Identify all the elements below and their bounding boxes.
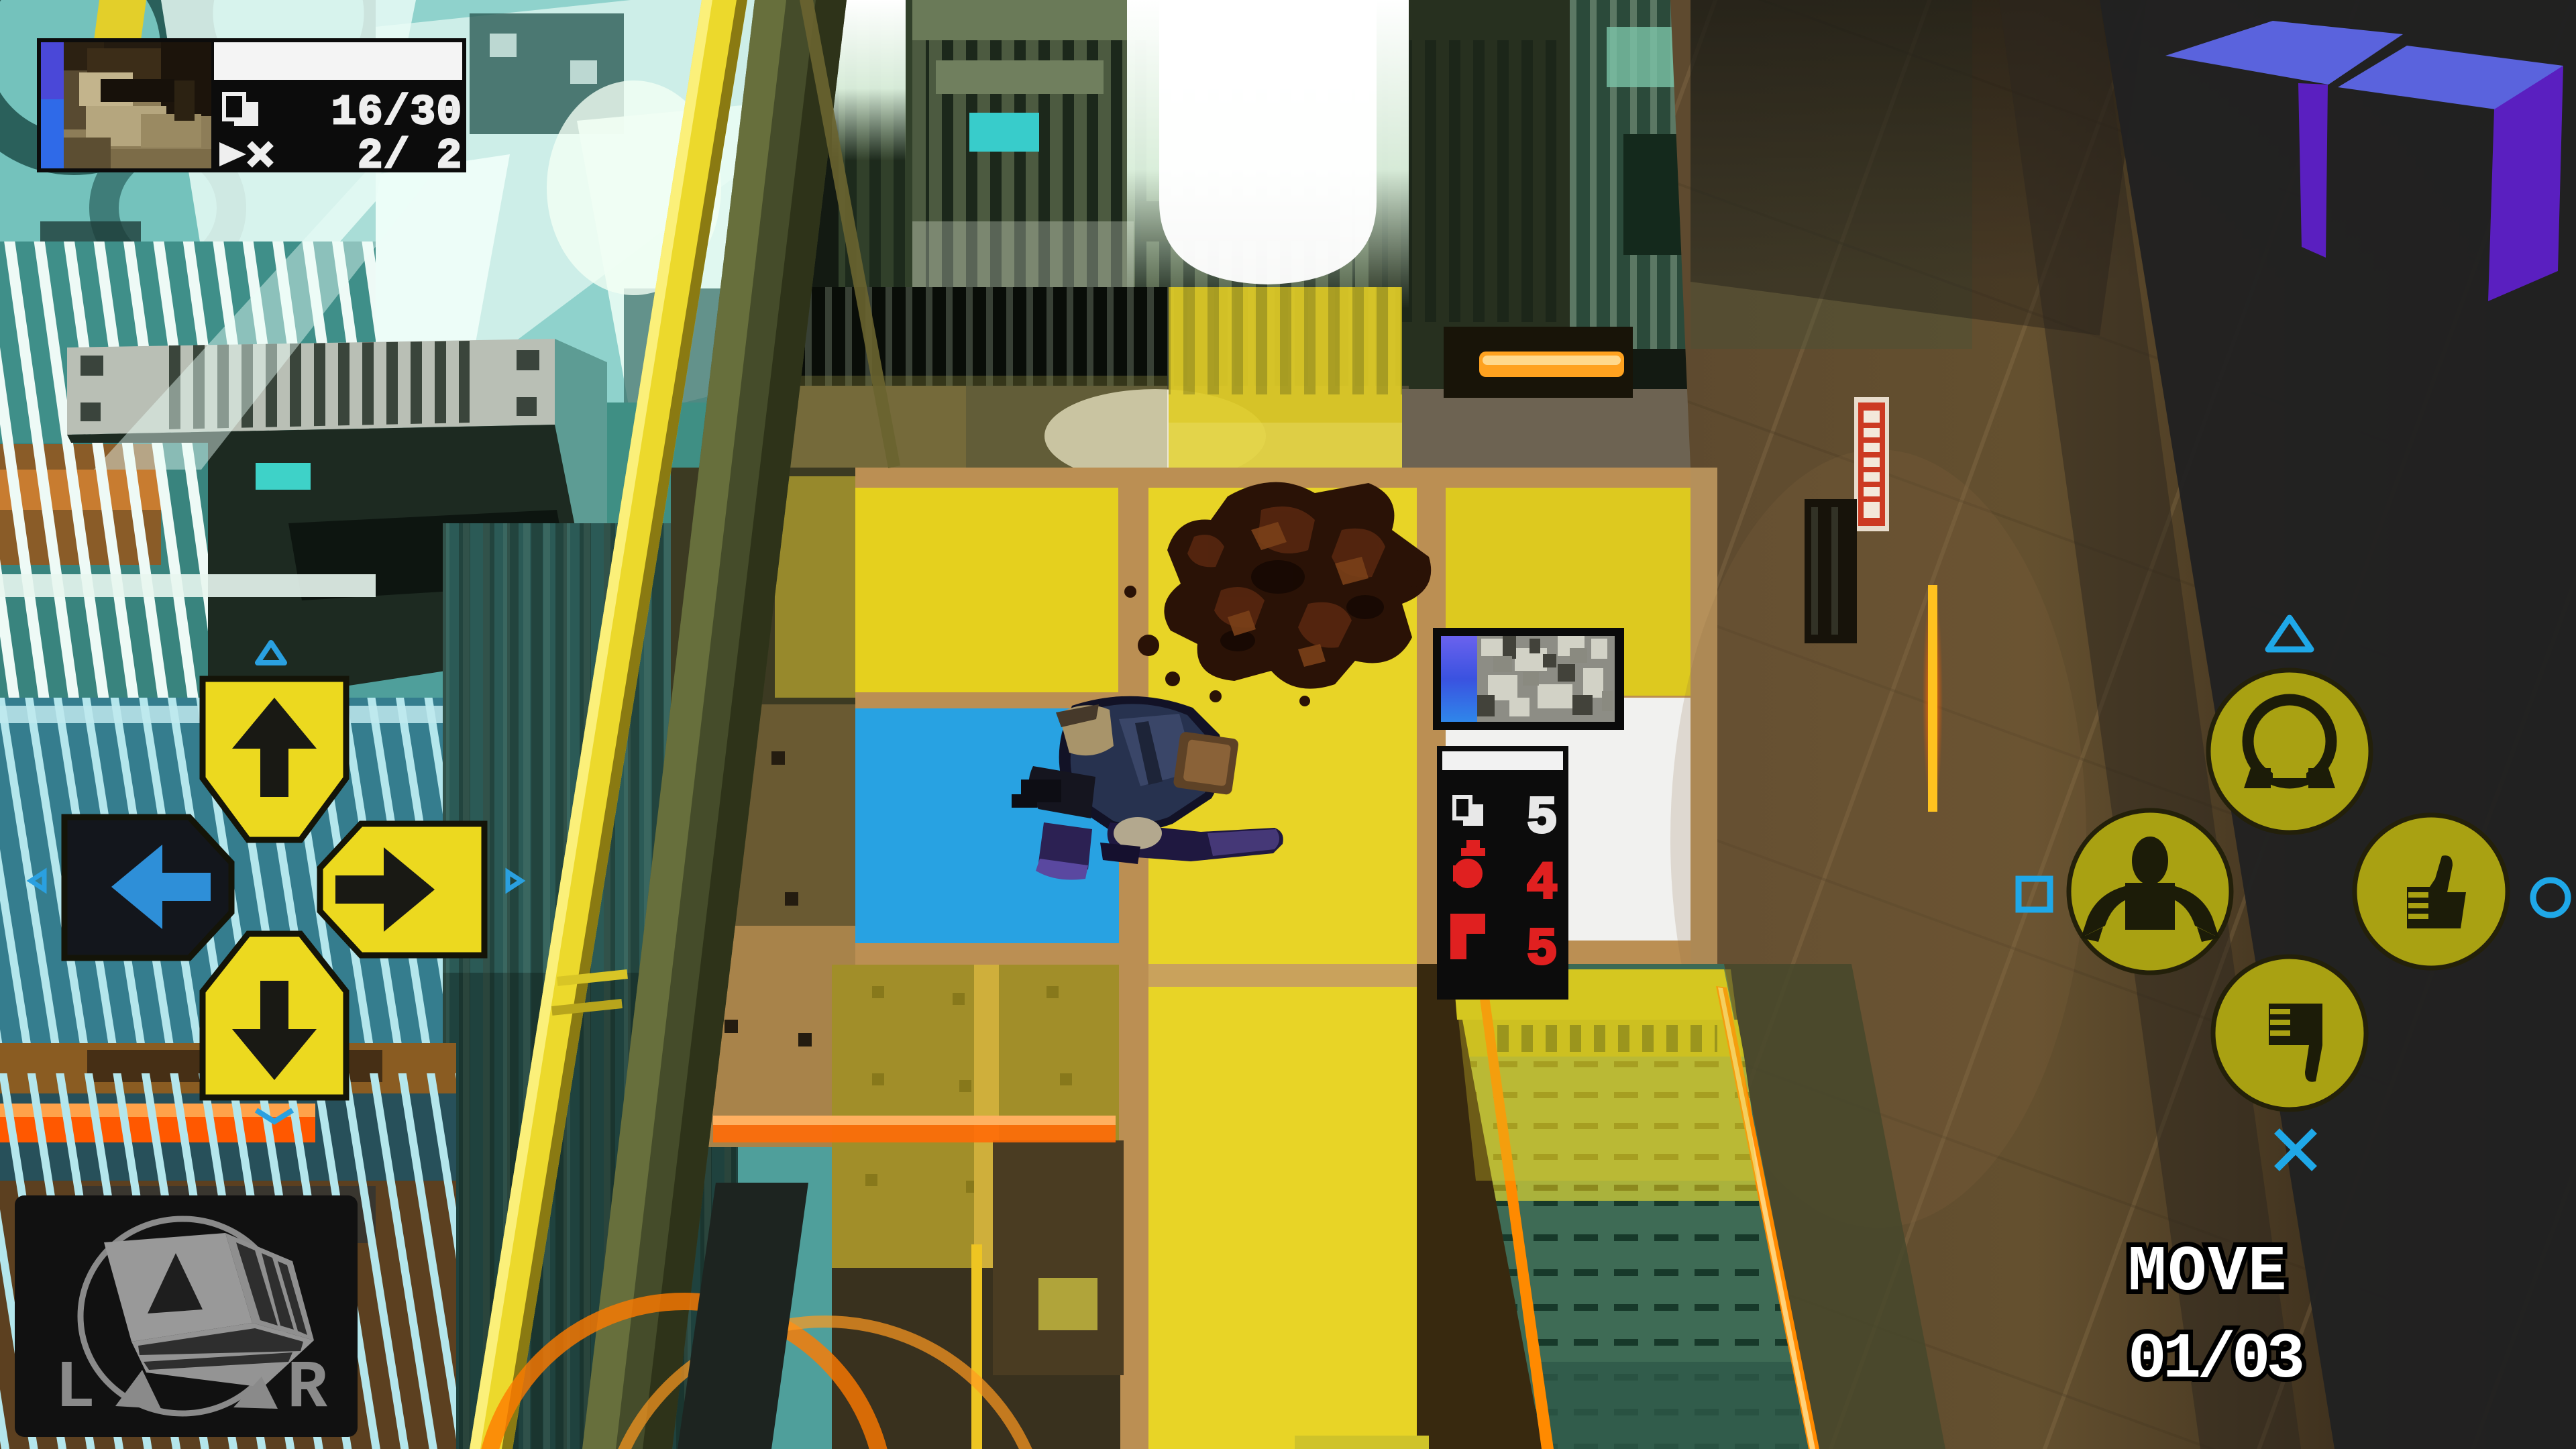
svg-text:4: 4	[1526, 855, 1558, 914]
svg-text:L: L	[55, 1351, 95, 1427]
svg-text:16/30: 16/30	[331, 89, 463, 136]
svg-text:01/03: 01/03	[2128, 1323, 2302, 1396]
svg-text:2/ 2: 2/ 2	[358, 132, 463, 180]
svg-text:MOVE: MOVE	[2128, 1236, 2288, 1309]
svg-text:5: 5	[1526, 789, 1558, 848]
svg-text:5: 5	[1526, 920, 1558, 979]
svg-text:R: R	[287, 1351, 327, 1427]
